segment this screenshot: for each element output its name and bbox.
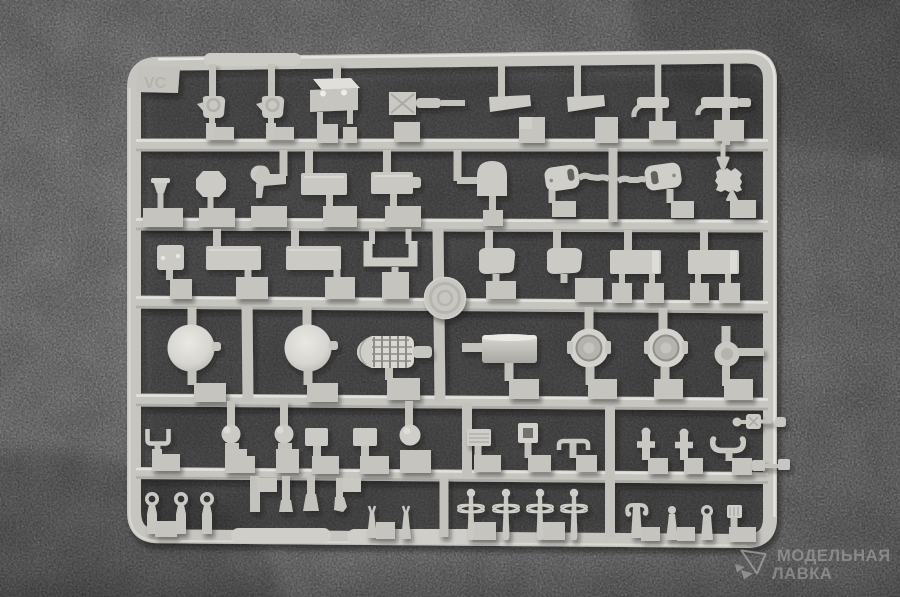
svg-text:МОДЕЛЬНАЯ: МОДЕЛЬНАЯ (777, 547, 891, 565)
svg-text:ЛАВКА: ЛАВКА (772, 565, 832, 583)
svg-text:VC: VC (144, 75, 167, 92)
